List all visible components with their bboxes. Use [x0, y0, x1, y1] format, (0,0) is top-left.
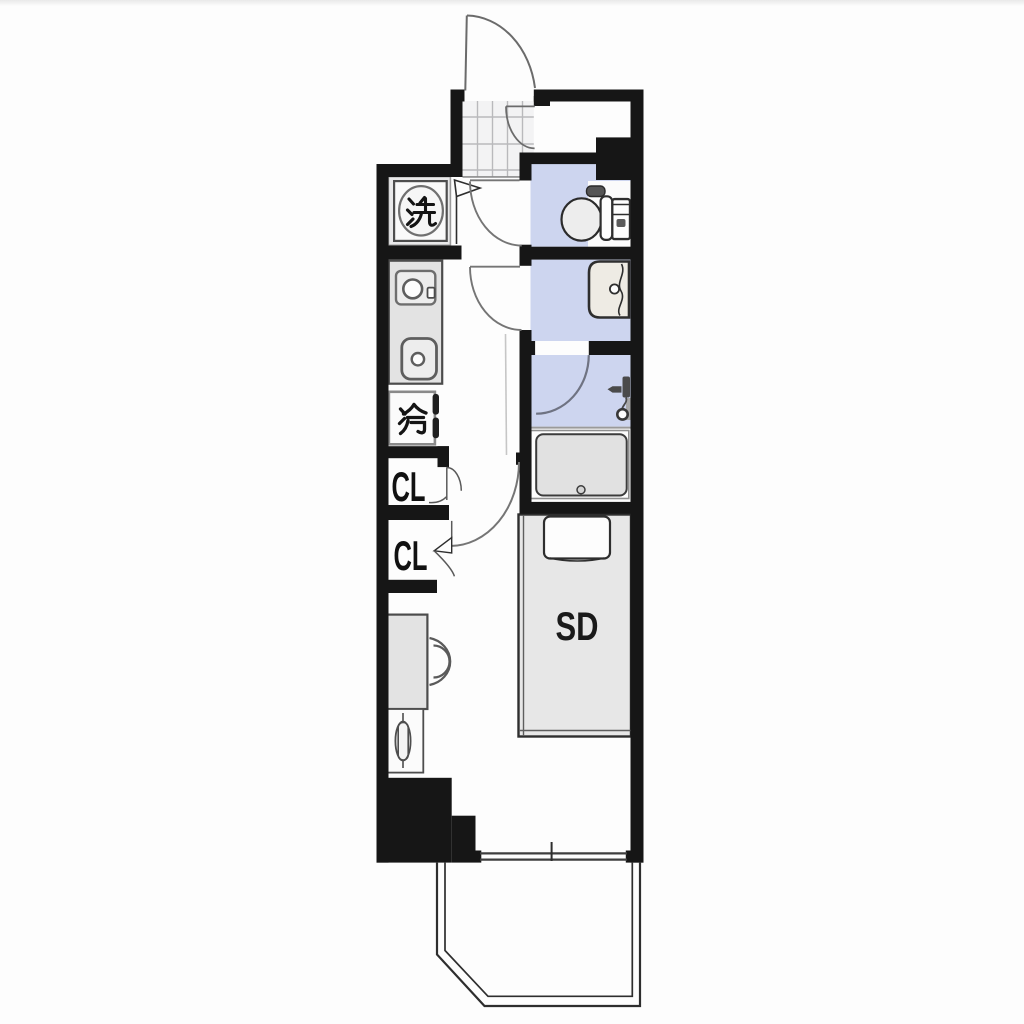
svg-text:CL: CL — [394, 532, 428, 579]
svg-text:SD: SD — [556, 605, 599, 649]
svg-text:CL: CL — [392, 463, 426, 510]
